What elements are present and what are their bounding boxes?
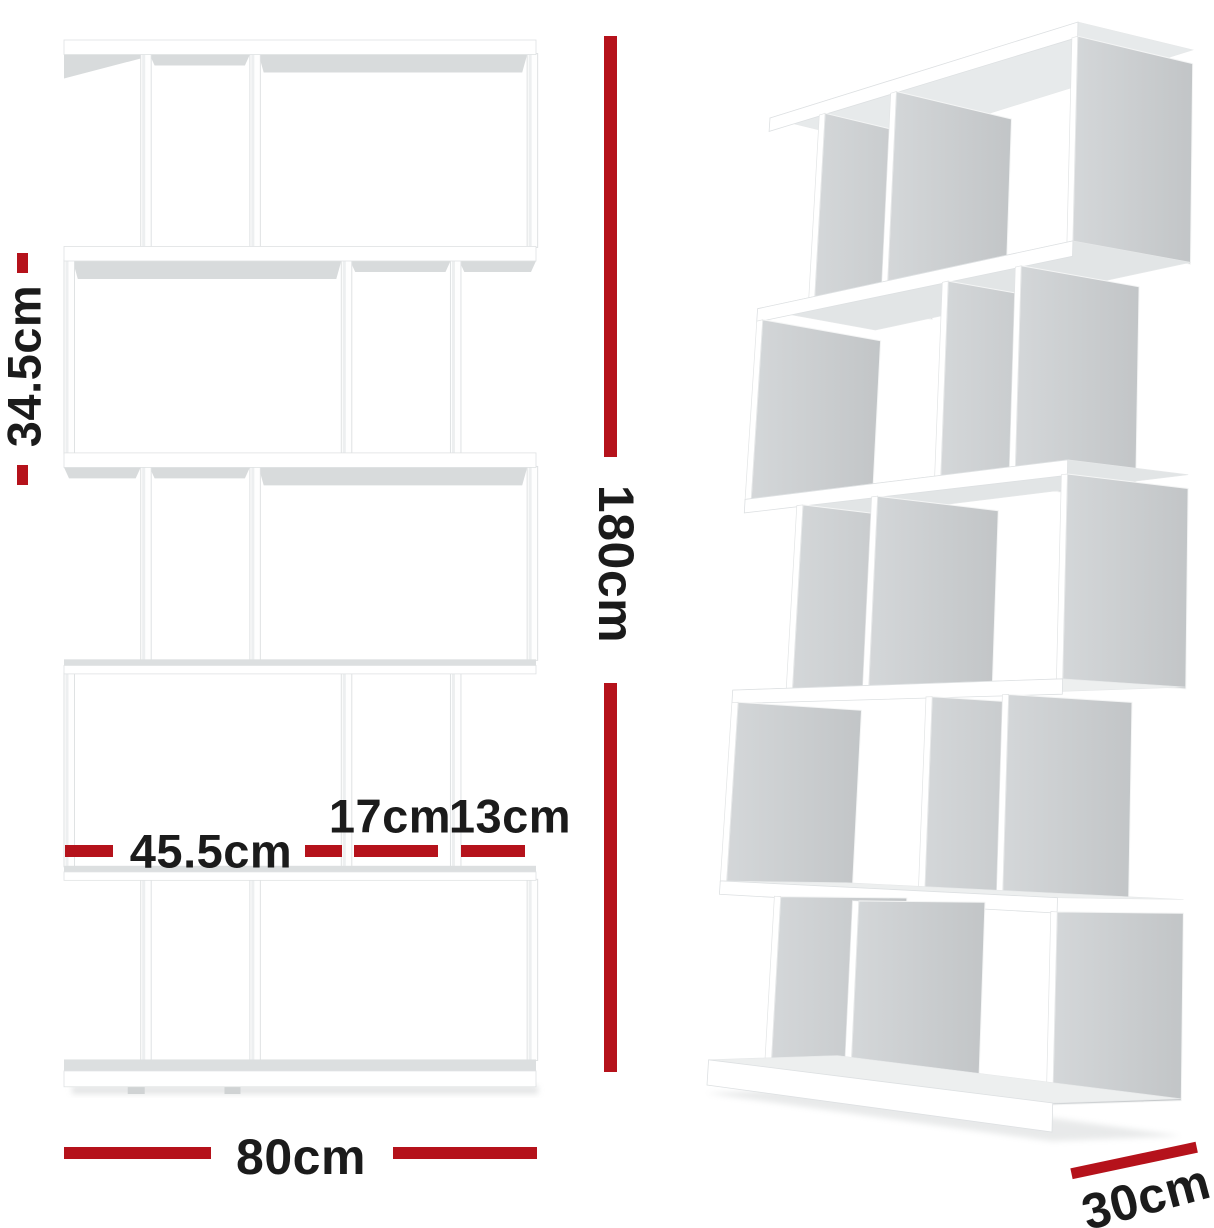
panel-shade <box>66 673 69 867</box>
panel-shade <box>529 466 532 660</box>
total-height-dimension: 180cm <box>588 36 644 1072</box>
panel-shade <box>142 466 145 660</box>
shelf-board <box>64 665 536 673</box>
dimension-line <box>461 845 525 857</box>
panel-shade <box>251 54 254 248</box>
board-underside-shadow <box>459 261 536 272</box>
panel-shade <box>529 54 532 248</box>
dimension-dash <box>65 845 113 857</box>
perspective-view-shelf <box>707 22 1193 1141</box>
total-width-label: 80cm <box>236 1129 366 1185</box>
dimension-line <box>393 1147 537 1159</box>
dimension-line <box>354 845 438 857</box>
panel-side-face <box>1003 695 1132 899</box>
panel-shade <box>142 879 145 1060</box>
panel-side-face <box>1073 36 1193 264</box>
board-underside-shadow <box>64 55 141 79</box>
dimension-dash <box>305 845 342 857</box>
small-compartment-width-label: 13cm <box>449 790 571 843</box>
product-dimension-diagram: 34.5cm 180cm 45.5cm 17cm 13cm 80cm 30cm <box>0 0 1214 1228</box>
panel-shade <box>251 466 254 660</box>
shelf-board <box>64 40 536 55</box>
panel-shade <box>66 260 69 454</box>
panel-side-face <box>1053 912 1184 1105</box>
shelf-board <box>64 1071 536 1087</box>
dimension-line-segment <box>604 36 617 457</box>
depth-dimension: 30cm <box>1070 1142 1214 1228</box>
dimension-line <box>64 1147 211 1159</box>
panel-side-face <box>1063 474 1189 689</box>
panel-shade <box>529 879 532 1060</box>
shelf-foot <box>224 1086 240 1094</box>
board-underside-shadow <box>150 467 250 478</box>
board-underside-shadow <box>64 467 141 478</box>
shelf-board <box>64 453 536 468</box>
front-view-shelf <box>64 40 538 1094</box>
panel-side-face <box>1015 266 1139 483</box>
panel-shade <box>452 260 455 454</box>
total-height-label: 180cm <box>588 485 644 643</box>
panel-side-face <box>727 702 862 884</box>
board-top-face <box>64 659 536 665</box>
board-underside-shadow <box>259 467 528 485</box>
medium-compartment-width-label: 17cm <box>329 790 451 843</box>
board-underside-shadow <box>73 261 342 279</box>
shelf-board <box>64 246 536 261</box>
panel-side-face <box>869 496 999 695</box>
panel-shade <box>251 879 254 1060</box>
tier-height-label: 34.5cm <box>0 285 51 447</box>
board-underside-shadow <box>259 55 528 73</box>
total-width-dimension: 80cm <box>64 1129 537 1185</box>
dimension-tick <box>17 465 28 485</box>
dimension-tick <box>17 253 28 273</box>
panel-side-face <box>851 901 986 1079</box>
board-top-face <box>64 1059 536 1070</box>
board-underside-shadow <box>350 261 450 272</box>
tier-height-dimension: 34.5cm <box>0 253 51 485</box>
board-underside-shadow <box>150 55 250 66</box>
compartment-width-dimensions: 45.5cm 17cm 13cm <box>65 790 571 878</box>
dimension-line-segment <box>604 683 617 1072</box>
diagram-canvas: 34.5cm 180cm 45.5cm 17cm 13cm 80cm 30cm <box>0 0 1214 1228</box>
shelf-foot <box>128 1086 145 1094</box>
large-compartment-width-label: 45.5cm <box>130 825 292 878</box>
panel-shade <box>142 54 145 248</box>
panel-shade <box>343 260 346 454</box>
